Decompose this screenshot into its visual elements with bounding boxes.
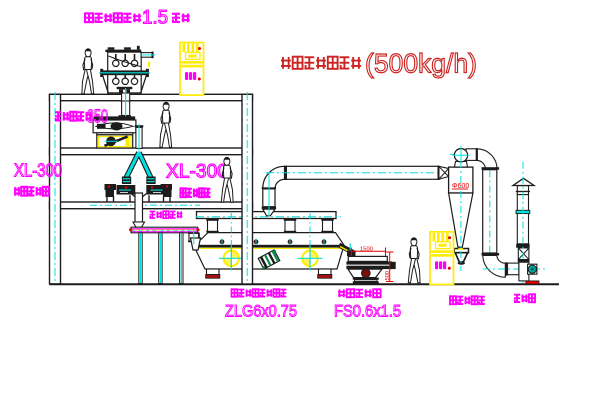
svg-text:XL-300: XL-300: [14, 160, 62, 181]
svg-text:350: 350: [87, 107, 108, 127]
svg-text:FS0.6x1.5: FS0.6x1.5: [334, 302, 401, 321]
svg-text:(500kg/h): (500kg/h): [365, 49, 477, 79]
svg-text:XL-300: XL-300: [166, 161, 228, 183]
svg-text:1.5: 1.5: [142, 8, 168, 29]
svg-text:500: 500: [385, 271, 391, 281]
svg-text:1500: 1500: [360, 246, 373, 252]
svg-text:ZLG6x0.75: ZLG6x0.75: [225, 302, 297, 321]
